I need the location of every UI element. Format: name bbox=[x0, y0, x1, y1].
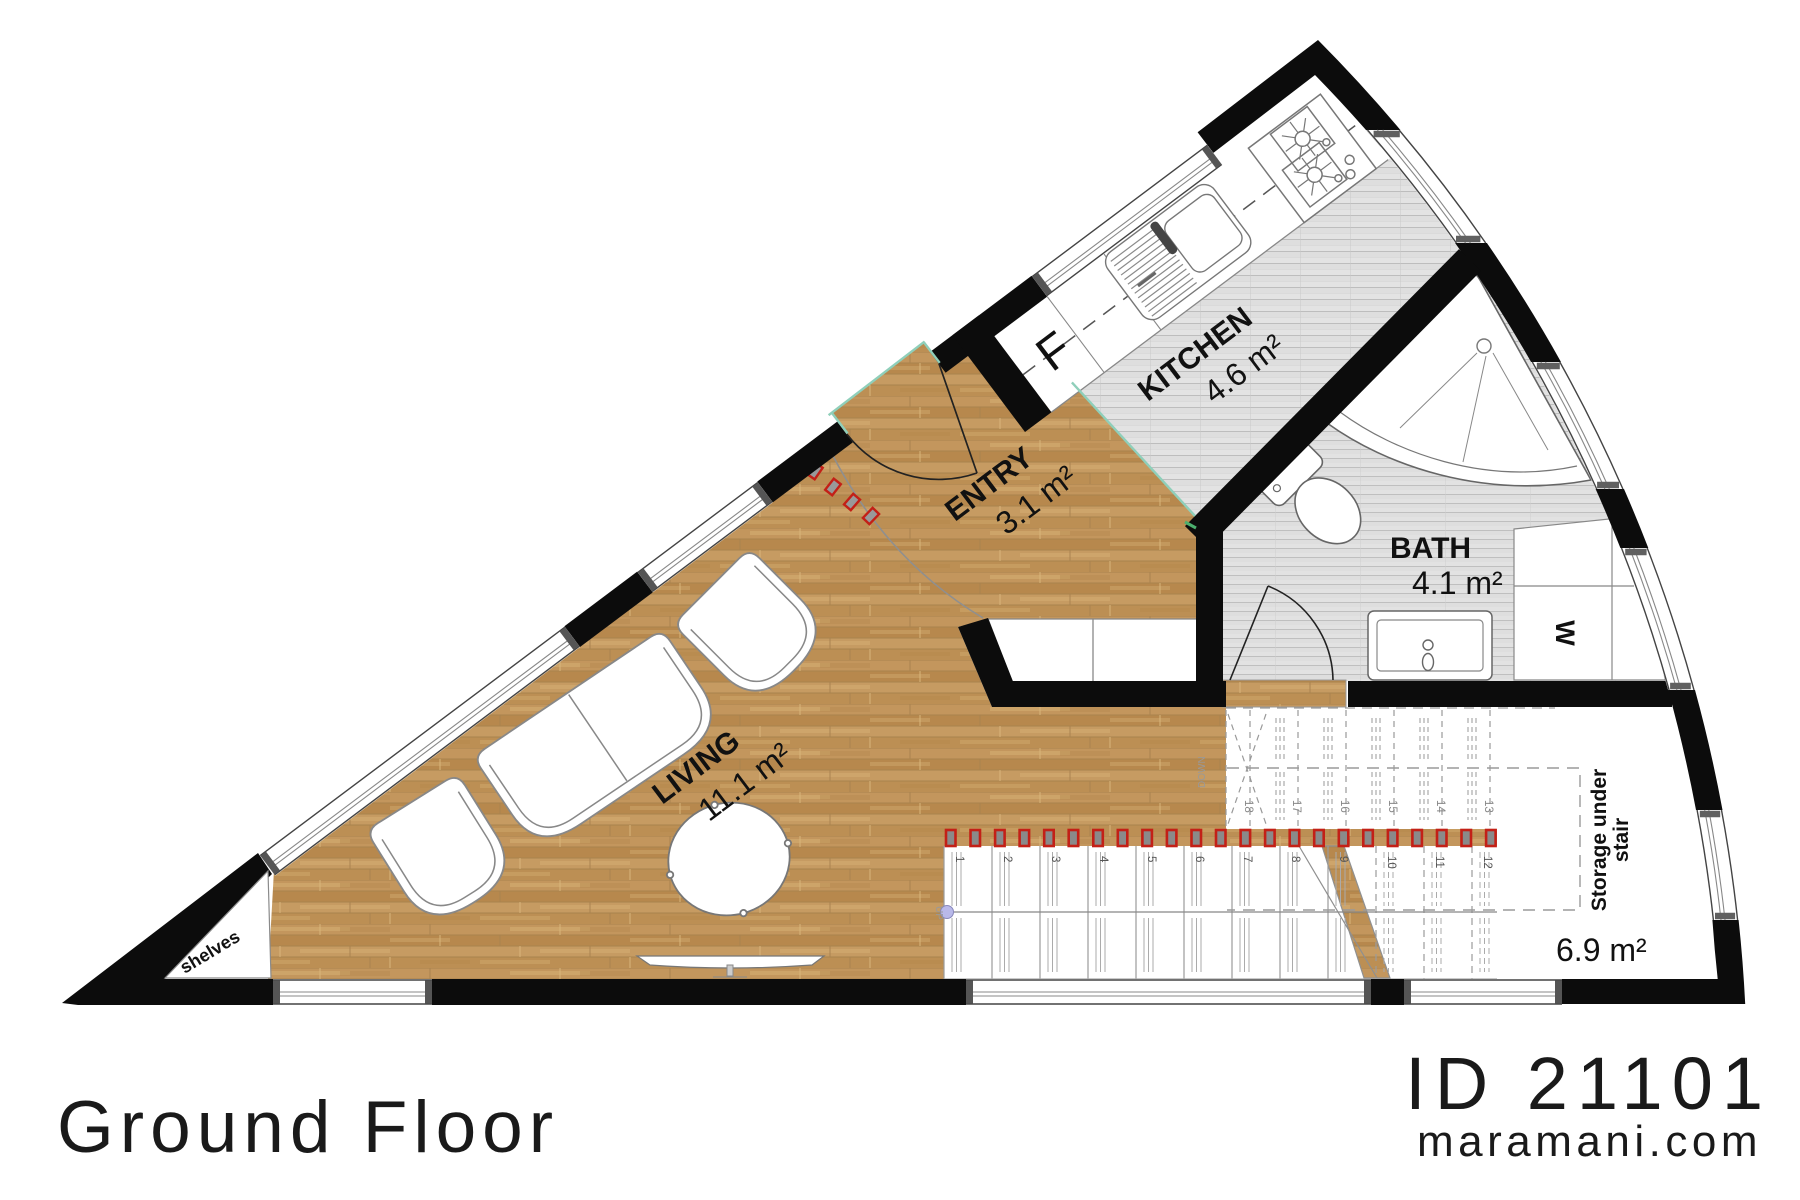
svg-text:6.9 m²: 6.9 m² bbox=[1556, 932, 1647, 968]
svg-text:DOWN: DOWN bbox=[1197, 756, 1208, 788]
svg-text:15: 15 bbox=[1386, 800, 1398, 813]
svg-text:W: W bbox=[1550, 620, 1580, 646]
svg-text:3: 3 bbox=[1049, 856, 1061, 862]
svg-text:16: 16 bbox=[1338, 800, 1350, 813]
svg-text:2: 2 bbox=[1001, 856, 1013, 862]
svg-text:Storage under: Storage under bbox=[1588, 769, 1611, 911]
svg-text:stair: stair bbox=[1610, 818, 1633, 862]
svg-text:1: 1 bbox=[953, 856, 965, 862]
svg-text:BATH: BATH bbox=[1390, 532, 1471, 565]
svg-text:5: 5 bbox=[1145, 856, 1157, 862]
svg-text:14: 14 bbox=[1434, 800, 1446, 813]
svg-text:6: 6 bbox=[1193, 856, 1205, 862]
svg-text:13: 13 bbox=[1482, 800, 1494, 813]
svg-text:8: 8 bbox=[1289, 856, 1301, 862]
svg-text:7: 7 bbox=[1241, 856, 1253, 862]
svg-text:9: 9 bbox=[1337, 856, 1349, 862]
svg-text:ID 21101: ID 21101 bbox=[1405, 1042, 1772, 1125]
svg-text:11: 11 bbox=[1433, 856, 1445, 868]
svg-text:12: 12 bbox=[1481, 856, 1493, 869]
svg-text:maramani.com: maramani.com bbox=[1417, 1117, 1762, 1166]
svg-text:4: 4 bbox=[1097, 856, 1109, 863]
svg-text:10: 10 bbox=[1385, 856, 1397, 869]
svg-text:17: 17 bbox=[1290, 800, 1302, 813]
svg-text:Ground Floor: Ground Floor bbox=[57, 1087, 559, 1168]
svg-text:UP: UP bbox=[933, 906, 944, 920]
svg-text:18: 18 bbox=[1242, 800, 1254, 813]
svg-text:4.1 m²: 4.1 m² bbox=[1412, 565, 1503, 601]
